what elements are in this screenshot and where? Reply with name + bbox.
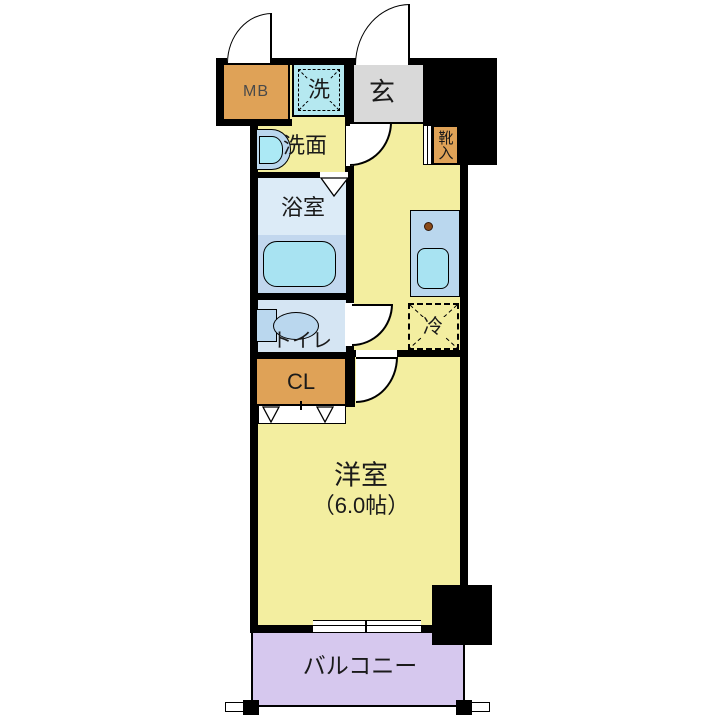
label-shoe-cabinet: 靴入 bbox=[438, 130, 453, 160]
kitchen-sink bbox=[417, 248, 449, 289]
balcony-window bbox=[313, 620, 421, 633]
room-door-opening bbox=[355, 350, 398, 357]
floorplan: MB 洗 玄 靴入 洗面 浴室 トイレ CL 冷 洋室 （6.0帖） バルコニー bbox=[0, 0, 720, 720]
closet-door-handle-tick bbox=[300, 401, 302, 410]
wall-washer-entrance bbox=[345, 58, 354, 122]
balcony-rail-left bbox=[225, 702, 244, 712]
mb-door-swing bbox=[227, 13, 272, 63]
balcony-post-right bbox=[456, 700, 472, 715]
bathtub bbox=[263, 241, 336, 287]
wall-right bbox=[460, 165, 468, 585]
wall-bottom-left bbox=[252, 625, 313, 633]
balcony-post-left bbox=[243, 700, 259, 715]
pillar bbox=[432, 585, 492, 645]
label-meter-box: MB bbox=[243, 84, 269, 100]
label-toilet: トイレ bbox=[272, 331, 332, 351]
balcony-rail-right bbox=[471, 702, 490, 712]
label-western-room-size: （6.0帖） bbox=[313, 495, 410, 517]
label-washer: 洗 bbox=[307, 79, 331, 101]
entrance-door-swing bbox=[355, 4, 410, 65]
label-refrigerator: 冷 bbox=[421, 317, 445, 337]
washbasin-bowl bbox=[259, 136, 283, 164]
label-bathroom: 浴室 bbox=[281, 197, 325, 219]
closet-door-triangle-icon bbox=[262, 406, 280, 423]
stove-burner-icon bbox=[424, 222, 433, 231]
label-entrance: 玄 bbox=[369, 79, 395, 105]
label-closet: CL bbox=[287, 371, 315, 393]
label-western-room: 洋室 bbox=[334, 463, 388, 490]
shoe-cabinet-door-line bbox=[427, 126, 428, 164]
wall-bathroom-toilet bbox=[250, 293, 346, 300]
balcony-window-latch-tick bbox=[365, 621, 367, 632]
balcony-window-rail-line bbox=[313, 625, 421, 626]
shoe-cabinet-door bbox=[423, 125, 432, 165]
label-balcony: バルコニー bbox=[303, 655, 418, 678]
closet-door-triangle-icon bbox=[316, 406, 334, 423]
label-washroom: 洗面 bbox=[283, 135, 327, 157]
